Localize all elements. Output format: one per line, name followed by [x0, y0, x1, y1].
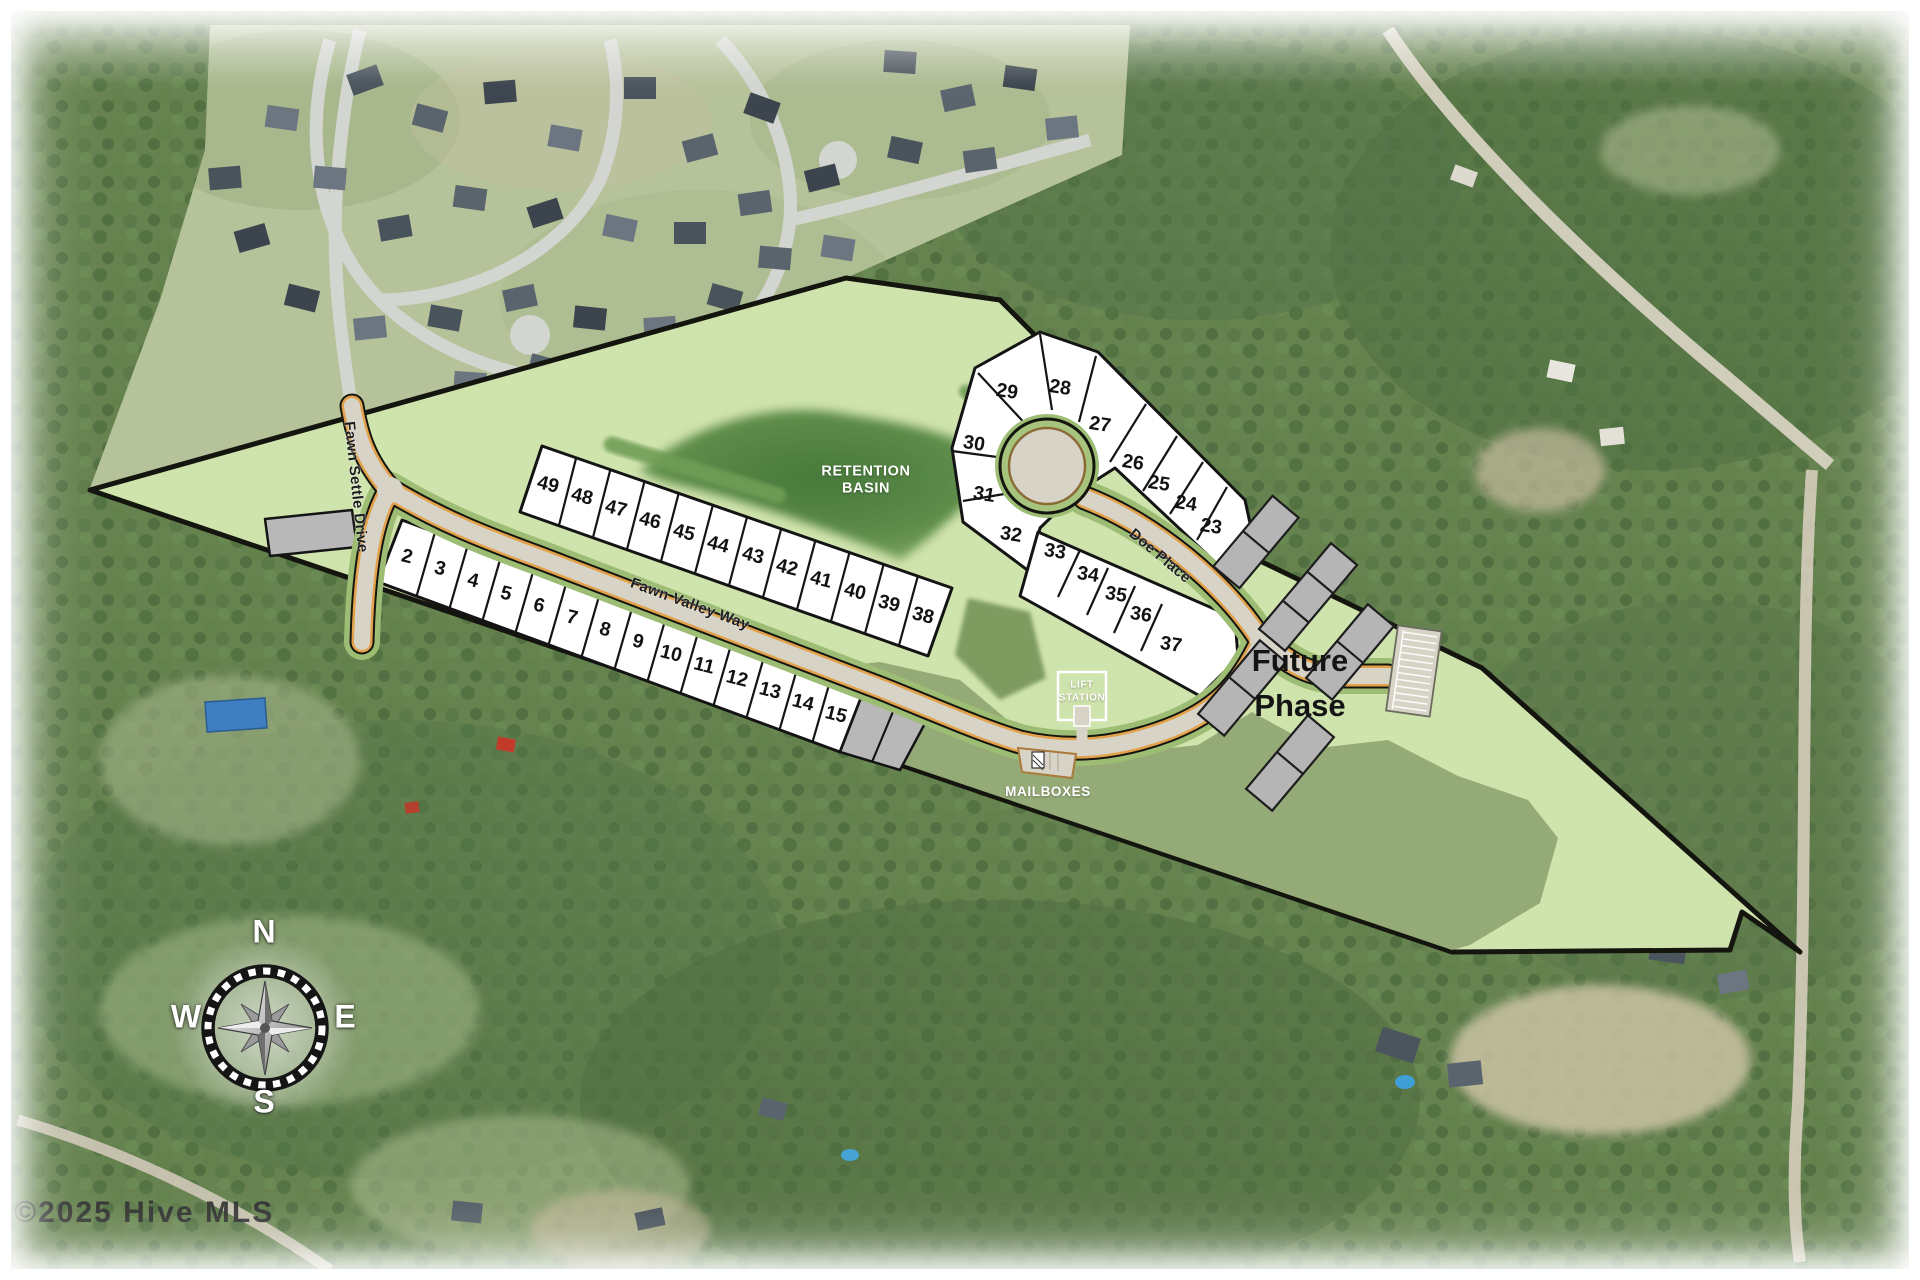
aerial-site-plan [0, 0, 1920, 1280]
culdesac [1000, 419, 1094, 513]
site-plan-screenshot: Fawn Settle Drive Fawn Valley Way Doe Pl… [0, 0, 1920, 1280]
compass-rose [173, 936, 357, 1120]
mailbox-pullout [1018, 748, 1076, 778]
